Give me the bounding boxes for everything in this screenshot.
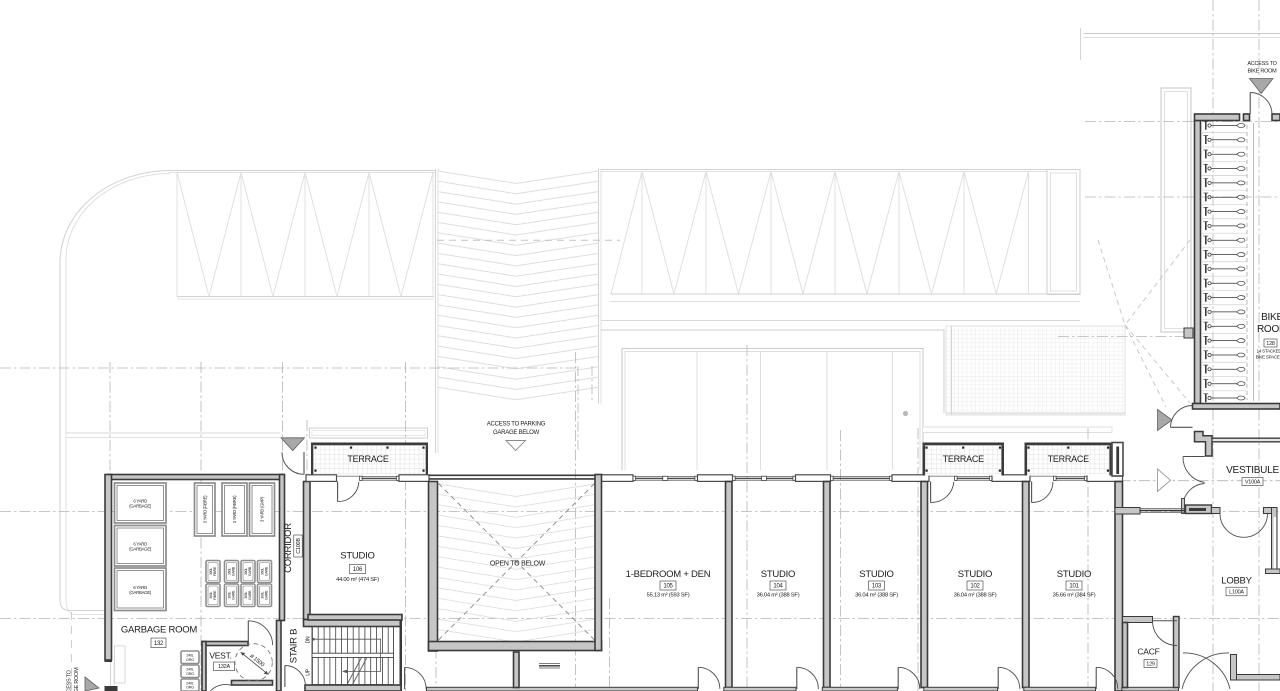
svg-text:L100A: L100A	[1229, 589, 1244, 595]
svg-text:(GARBAGE): (GARBAGE)	[129, 504, 152, 509]
svg-text:ROOM: ROOM	[1257, 324, 1280, 335]
svg-text:360L: 360L	[209, 568, 213, 575]
svg-text:360L: 360L	[209, 592, 213, 599]
svg-text:103: 103	[872, 584, 882, 590]
svg-text:55.13 m² (593 SF): 55.13 m² (593 SF)	[647, 593, 690, 599]
svg-text:(GARBAGE): (GARBAGE)	[129, 546, 152, 551]
svg-text:STUDIO: STUDIO	[958, 569, 992, 580]
svg-text:ORG: ORG	[186, 686, 194, 690]
svg-text:CACF: CACF	[1137, 647, 1159, 657]
svg-text:360L: 360L	[260, 568, 264, 575]
svg-text:DN: DN	[306, 636, 312, 643]
svg-text:ACCESS TO: ACCESS TO	[67, 669, 73, 691]
svg-text:3 YARD (FIBRE): 3 YARD (FIBRE)	[232, 495, 237, 523]
svg-text:360L: 360L	[244, 592, 248, 599]
svg-text:BIKE SPACES: BIKE SPACES	[1256, 355, 1280, 360]
svg-text:BIKE: BIKE	[1261, 312, 1280, 323]
svg-text:3 YARD (FIBRE): 3 YARD (FIBRE)	[202, 495, 207, 523]
svg-text:GARB: GARB	[248, 590, 252, 600]
svg-text:GARB: GARB	[265, 590, 269, 600]
svg-text:GARBAGE ROOM: GARBAGE ROOM	[121, 625, 198, 636]
svg-text:129: 129	[1146, 661, 1155, 667]
svg-text:132A: 132A	[218, 664, 230, 670]
svg-text:128: 128	[1266, 341, 1275, 347]
svg-text:BIKE ROOM: BIKE ROOM	[1248, 69, 1278, 75]
svg-text:360L: 360L	[260, 592, 264, 599]
svg-text:3 YARD (GMP): 3 YARD (GMP)	[260, 496, 265, 522]
svg-text:GARBAGE ROOM: GARBAGE ROOM	[74, 667, 80, 691]
svg-text:VESTIBULE: VESTIBULE	[1226, 465, 1279, 476]
svg-text:STUDIO: STUDIO	[1057, 569, 1091, 580]
svg-text:106: 106	[353, 567, 363, 573]
svg-text:44.00 m² (474 SF): 44.00 m² (474 SF)	[336, 577, 379, 583]
svg-text:ORG: ORG	[186, 658, 194, 662]
svg-text:STAIR B: STAIR B	[289, 629, 300, 664]
svg-text:GARAGE BELOW: GARAGE BELOW	[493, 430, 540, 436]
svg-text:101: 101	[1069, 584, 1079, 590]
svg-text:STUDIO: STUDIO	[761, 569, 795, 580]
svg-text:C100B: C100B	[296, 538, 302, 554]
svg-text:105: 105	[663, 584, 673, 590]
svg-text:36.04 m² (388 SF): 36.04 m² (388 SF)	[954, 593, 997, 599]
svg-text:360L: 360L	[227, 568, 231, 575]
svg-text:GARB: GARB	[232, 566, 236, 576]
svg-text:TERRACE: TERRACE	[943, 454, 985, 464]
svg-text:1-BEDROOM + DEN: 1-BEDROOM + DEN	[626, 569, 711, 580]
svg-text:ACCESS TO: ACCESS TO	[1247, 61, 1277, 67]
svg-text:TERRACE: TERRACE	[1048, 454, 1090, 464]
svg-text:14 STACKED: 14 STACKED	[1257, 349, 1280, 354]
svg-text:TERRACE: TERRACE	[347, 454, 389, 464]
svg-text:OPEN TO BELOW: OPEN TO BELOW	[490, 561, 546, 568]
svg-text:104: 104	[773, 584, 783, 590]
svg-text:GARB: GARB	[265, 566, 269, 576]
svg-text:CORRIDOR: CORRIDOR	[283, 523, 294, 573]
svg-text:36.04 m² (388 SF): 36.04 m² (388 SF)	[855, 593, 898, 599]
svg-text:V100A: V100A	[1245, 479, 1261, 485]
svg-text:35.66 m² (384 SF): 35.66 m² (384 SF)	[1053, 593, 1096, 599]
svg-text:FIBRE: FIBRE	[213, 566, 217, 576]
svg-text:(GARBAGE): (GARBAGE)	[129, 590, 152, 595]
svg-text:ORG: ORG	[186, 672, 194, 676]
svg-text:ACCESS TO PARKING: ACCESS TO PARKING	[487, 422, 546, 428]
svg-text:GARB: GARB	[248, 566, 252, 576]
svg-text:GARB: GARB	[232, 590, 236, 600]
svg-text:360L: 360L	[244, 568, 248, 575]
svg-text:VEST.: VEST.	[209, 651, 231, 661]
svg-text:FIBRE: FIBRE	[213, 590, 217, 600]
svg-text:UP: UP	[306, 668, 312, 675]
svg-text:STUDIO: STUDIO	[859, 569, 893, 580]
svg-text:360L: 360L	[227, 592, 231, 599]
svg-text:STUDIO: STUDIO	[340, 551, 374, 562]
svg-text:132: 132	[154, 641, 164, 647]
svg-text:36.04 m² (388 SF): 36.04 m² (388 SF)	[757, 593, 800, 599]
svg-text:102: 102	[970, 584, 980, 590]
svg-text:LOBBY: LOBBY	[1221, 576, 1252, 587]
